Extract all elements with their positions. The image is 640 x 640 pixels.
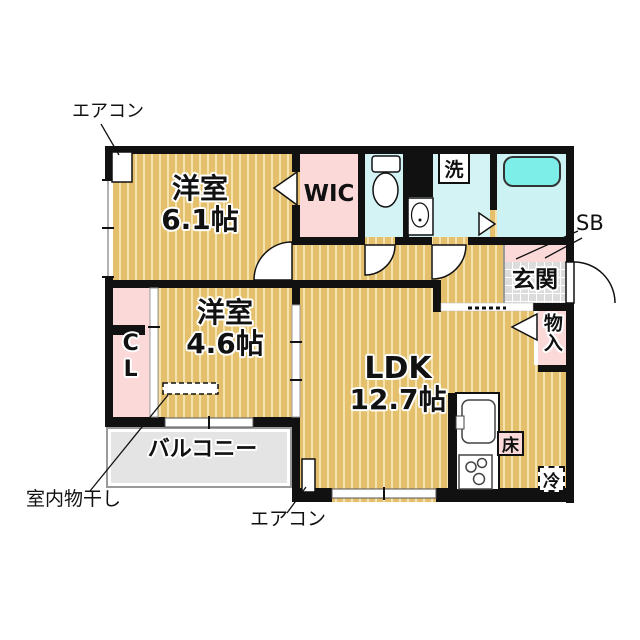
ac-unit-bottom [302, 459, 315, 492]
aircon-bottom-label: エアコン [250, 509, 326, 530]
shoe-box-label: SB [576, 212, 604, 235]
aircon-top-label: エアコン [72, 102, 144, 122]
floor-storage-box: 床 [497, 431, 524, 456]
swing-doors [254, 242, 466, 280]
entrance-door [566, 262, 615, 303]
ldk-size: 12.7帖 [323, 385, 473, 416]
washer-box: 洗 [438, 152, 470, 184]
bedroom1-label: 洋室 6.1帖 [125, 174, 275, 236]
bedroom2-label: 洋室 4.6帖 [150, 298, 300, 360]
closet-label: CL [118, 331, 142, 383]
balcony-label: バルコニー [135, 438, 270, 462]
floorplan: エアコン 洋室 6.1帖 WIC 洗 SB 玄関 物入 CL 洋室 4.6帖 L… [0, 0, 640, 640]
bathtub-icon [504, 157, 560, 186]
wic-label: WIC [300, 182, 358, 207]
washbasin-icon [408, 198, 433, 235]
toilet-icon [372, 156, 400, 207]
entrance-label: 玄関 [503, 268, 567, 293]
bedroom1-name: 洋室 [125, 174, 275, 205]
indoor-drying-label: 室内物干し [26, 489, 121, 510]
refrigerator-box: 冷 [538, 466, 565, 492]
storage-label: 物入 [541, 313, 562, 353]
bedroom1-size: 6.1帖 [125, 205, 275, 236]
bedroom2-size: 4.6帖 [150, 329, 300, 360]
ldk-name: LDK [323, 352, 473, 385]
ldk-label: LDK 12.7帖 [323, 352, 473, 416]
bedroom2-name: 洋室 [150, 298, 300, 329]
drying-rail-icon [163, 383, 218, 394]
